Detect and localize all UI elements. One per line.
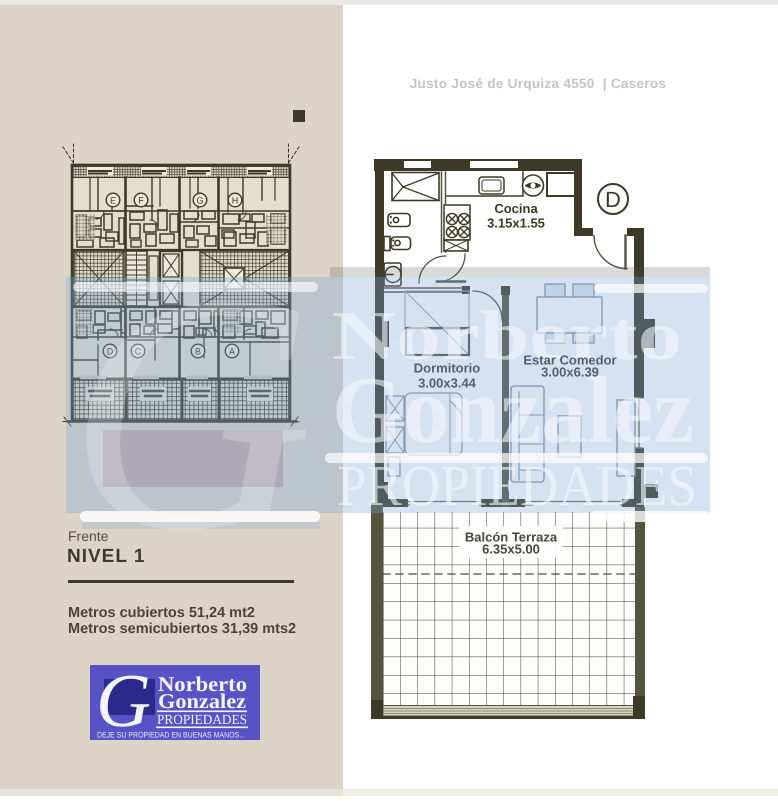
svg-text:H: H	[232, 195, 239, 205]
svg-text:3.00x3.44: 3.00x3.44	[418, 376, 477, 391]
svg-text:Gonzalez: Gonzalez	[332, 357, 694, 463]
svg-text:Cocina: Cocina	[494, 201, 538, 216]
svg-text:Frente: Frente	[68, 528, 109, 544]
svg-text:3.15x1.55: 3.15x1.55	[487, 216, 545, 231]
svg-text:PROPIEDADES: PROPIEDADES	[157, 713, 247, 728]
svg-text:DEJE SU PROPIEDAD EN BUENAS MA: DEJE SU PROPIEDAD EN BUENAS MANOS...	[97, 731, 245, 740]
svg-text:PROPIEDADES: PROPIEDADES	[337, 453, 697, 518]
svg-text:NIVEL 1: NIVEL 1	[67, 546, 145, 567]
svg-text:E: E	[110, 195, 116, 205]
svg-text:Metros semicubiertos 31,39 mts: Metros semicubiertos 31,39 mts2	[68, 621, 296, 637]
svg-text:Gonzalez: Gonzalez	[158, 689, 246, 713]
svg-text:Dormitorio: Dormitorio	[414, 361, 481, 376]
svg-text:3.00x6.39: 3.00x6.39	[541, 365, 599, 380]
svg-text:G: G	[68, 224, 314, 601]
svg-text:Metros cubiertos 51,24 mt2: Metros cubiertos 51,24 mt2	[68, 605, 255, 621]
svg-text:F: F	[138, 195, 144, 205]
svg-text:G: G	[196, 195, 203, 205]
svg-text:D: D	[605, 187, 621, 212]
svg-text:Justo José de Urquiza 4550 |: Justo José de Urquiza 4550 | Caseros	[410, 76, 666, 91]
svg-text:6.35x5.00: 6.35x5.00	[482, 542, 540, 557]
